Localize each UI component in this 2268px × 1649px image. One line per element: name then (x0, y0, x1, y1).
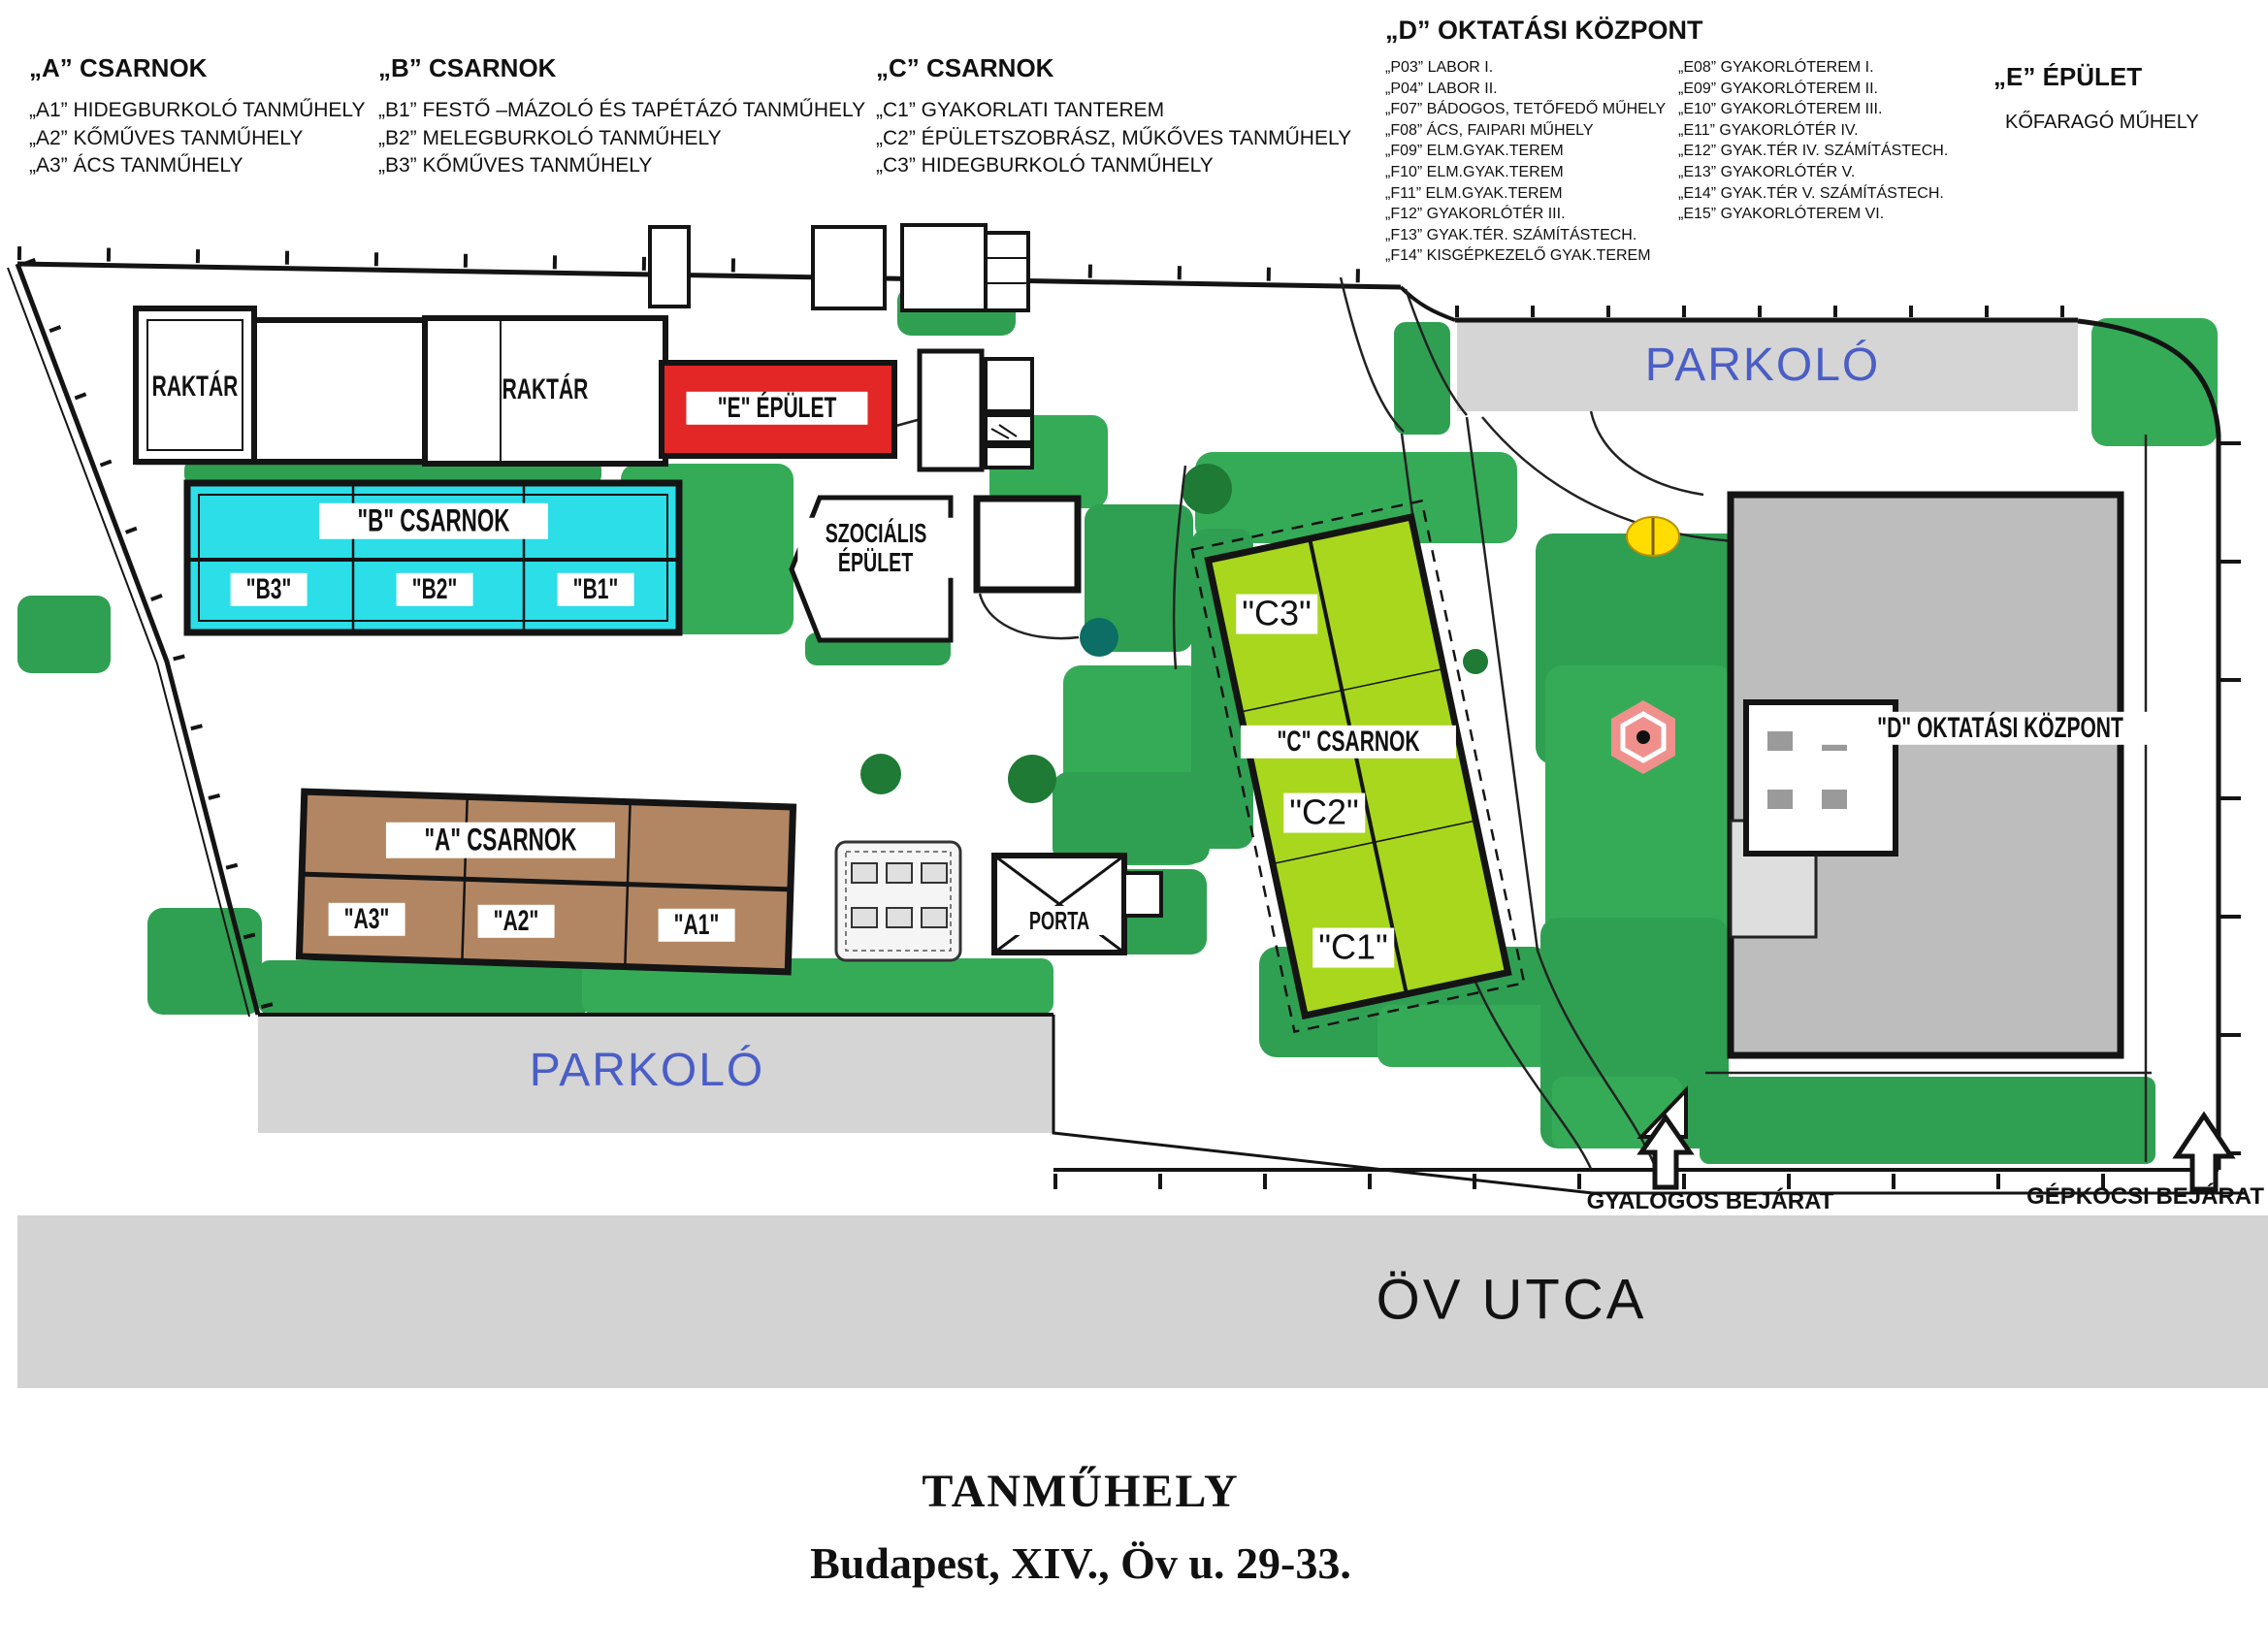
vehicle-entrance-arrow-icon (2177, 1115, 2231, 1189)
legend-d-item: „E12” GYAK.TÉR IV. SZÁMÍTÁSTECH. (1678, 141, 1989, 162)
building-top-row (254, 225, 1028, 464)
legend-d-item: „E15” GYAKORLÓTEREM VI. (1678, 204, 1989, 225)
garden-structure (836, 842, 960, 960)
label-b2: "B2" (397, 573, 473, 606)
label-e-building: "E" ÉPÜLET (686, 392, 867, 425)
label-vehicle-entrance: GÉPKOCSI BEJÁRAT (2026, 1183, 2264, 1211)
label-porta: PORTA (1010, 906, 1108, 935)
legend-d-item: „F12” GYAKORLÓTÉR III. (1385, 204, 1678, 225)
legend-b: „B” CSARNOK „B1” FESTŐ –MÁZOLÓ ÉS TAPÉTÁ… (378, 53, 865, 180)
legend-c-item: „C3” HIDEGBURKOLÓ TANMŰHELY (876, 152, 1351, 180)
tree (1008, 755, 1056, 803)
legend-c-item: „C1” GYAKORLATI TANTEREM (876, 97, 1351, 125)
label-raktar-right: RAKTÁR (484, 374, 607, 405)
legend-d-item: „F10” ELM.GYAK.TEREM (1385, 162, 1678, 183)
label-c3: "C3" (1236, 595, 1317, 634)
legend-e: „E” ÉPÜLET KŐFARAGÓ MŰHELY (1993, 62, 2199, 134)
label-a-hall: "A" CSARNOK (386, 823, 615, 858)
label-street: ÖV UTCA (1377, 1271, 1647, 1332)
legend-d-item: „F11” ELM.GYAK.TEREM (1385, 183, 1678, 205)
legend-d-item: „E13” GYAKORLÓTÉR V. (1678, 162, 1989, 183)
legend-d-item: „E09” GYAKORLÓTEREM II. (1678, 79, 1989, 100)
label-a1: "A1" (659, 909, 735, 942)
legend-b-title: „B” CSARNOK (378, 53, 865, 83)
label-d-center: "D" OKTATÁSI KÖZPONT (1819, 712, 2182, 745)
footer-address: Budapest, XIV., Öv u. 29-33. (810, 1537, 1351, 1589)
legend-d-item: „F09” ELM.GYAK.TEREM (1385, 141, 1678, 162)
label-b-hall: "B" CSARNOK (319, 503, 548, 539)
legend-d-title: „D” OKTATÁSI KÖZPONT (1385, 16, 1989, 46)
legend-d: „D” OKTATÁSI KÖZPONT „P03” LABOR I. „P04… (1385, 16, 1989, 267)
label-a2: "A2" (478, 905, 555, 938)
label-b1: "B1" (558, 573, 634, 606)
label-c1: "C1" (1312, 928, 1394, 968)
legend-a-title: „A” CSARNOK (29, 53, 366, 83)
legend-c: „C” CSARNOK „C1” GYAKORLATI TANTEREM „C2… (876, 53, 1351, 180)
legend-b-item: „B3” KŐMŰVES TANMŰHELY (378, 152, 865, 180)
legend-d-item: „E08” GYAKORLÓTEREM I. (1678, 57, 1989, 79)
legend-e-title: „E” ÉPÜLET (1993, 62, 2199, 92)
legend-c-title: „C” CSARNOK (876, 53, 1351, 83)
legend-e-item: KŐFARAGÓ MŰHELY (2005, 112, 2199, 134)
legend-d-item: „P03” LABOR I. (1385, 57, 1678, 79)
legend-d-item: „E14” GYAK.TÉR V. SZÁMÍTÁSTECH. (1678, 183, 1989, 205)
legend-d-item: „P04” LABOR II. (1385, 79, 1678, 100)
legend-d-item: „F13” GYAK.TÉR. SZÁMÍTÁSTECH. (1385, 225, 1678, 246)
building-a-hall (299, 792, 793, 972)
small-utility-buildings (920, 351, 1032, 469)
legend-c-item: „C2” ÉPÜLETSZOBRÁSZ, MŰKŐVES TANMŰHELY (876, 125, 1351, 153)
legend-a-item: „A3” ÁCS TANMŰHELY (29, 152, 366, 180)
tree (1463, 649, 1488, 674)
tree (1182, 464, 1232, 514)
label-b3: "B3" (231, 573, 308, 606)
label-parking-left: PARKOLÓ (530, 1046, 765, 1096)
legend-d-item: „F07” BÁDOGOS, TETŐFEDŐ MŰHELY (1385, 99, 1678, 120)
label-a3: "A3" (329, 903, 405, 936)
legend-b-item: „B2” MELEGBURKOLÓ TANMŰHELY (378, 125, 865, 153)
legend-d-col2: „E08” GYAKORLÓTEREM I. „E09” GYAKORLÓTER… (1678, 57, 1989, 267)
footer-title: TANMŰHELY (922, 1465, 1239, 1518)
label-c2: "C2" (1283, 793, 1365, 833)
label-pedestrian-entrance: GYALOGOS BEJÁRAT (1587, 1189, 1834, 1214)
yellow-landmark (1627, 517, 1679, 556)
building-d-center (1731, 495, 2121, 1055)
legend-d-item: „F14” KISGÉPKEZELŐ GYAK.TEREM (1385, 245, 1678, 267)
legend-a-item: „A2” KŐMŰVES TANMŰHELY (29, 125, 366, 153)
legend-d-col1: „P03” LABOR I. „P04” LABOR II. „F07” BÁD… (1385, 57, 1678, 267)
label-raktar-left: RAKTÁR (134, 372, 257, 403)
legend-a-item: „A1” HIDEGBURKOLÓ TANMŰHELY (29, 97, 366, 125)
legend-d-item: „F08” ÁCS, FAIPARI MŰHELY (1385, 120, 1678, 142)
legend-d-item: „E10” GYAKORLÓTEREM III. (1678, 99, 1989, 120)
label-szocialis: SZOCIÁLIS ÉPÜLET (797, 518, 954, 578)
site-map-page: „A” CSARNOK „A1” HIDEGBURKOLÓ TANMŰHELY … (0, 0, 2268, 1649)
label-parking-top: PARKOLÓ (1645, 340, 1881, 391)
legend-a: „A” CSARNOK „A1” HIDEGBURKOLÓ TANMŰHELY … (29, 53, 366, 180)
tree (860, 754, 901, 794)
tree (1080, 618, 1118, 657)
legend-b-item: „B1” FESTŐ –MÁZOLÓ ÉS TAPÉTÁZÓ TANMŰHELY (378, 97, 865, 125)
building-white-square (977, 499, 1078, 590)
label-c-hall: "C" CSARNOK (1241, 726, 1456, 759)
legend-d-item: „E11” GYAKORLÓTÉR IV. (1678, 120, 1989, 142)
